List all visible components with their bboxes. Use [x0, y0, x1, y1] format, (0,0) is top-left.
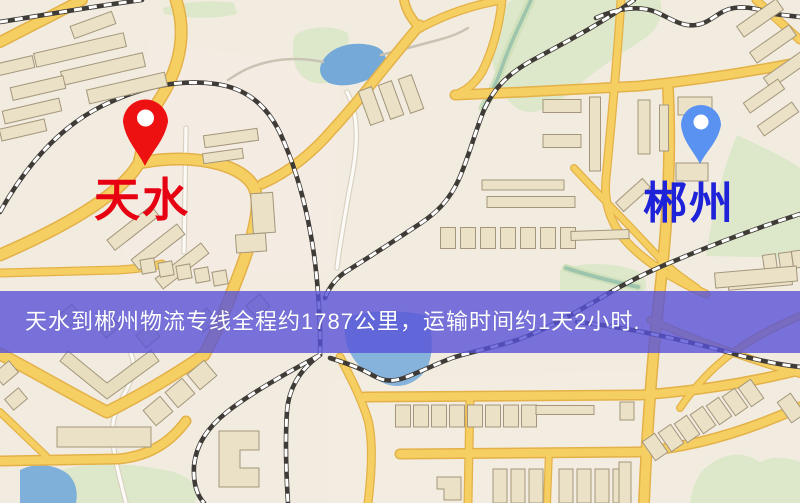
destination-label: 郴州 [643, 179, 735, 228]
map-screenshot: 天水 郴州 天水到郴州物流专线全程约1787公里，运输时间约1天2小时. [0, 0, 800, 503]
route-info-text: 天水到郴州物流专线全程约1787公里，运输时间约1天2小时. [25, 304, 641, 336]
origin-label: 天水 [94, 175, 190, 226]
route-info-banner: 天水到郴州物流专线全程约1787公里，运输时间约1天2小时. [0, 291, 800, 353]
map-canvas: 天水 郴州 [0, 0, 800, 503]
